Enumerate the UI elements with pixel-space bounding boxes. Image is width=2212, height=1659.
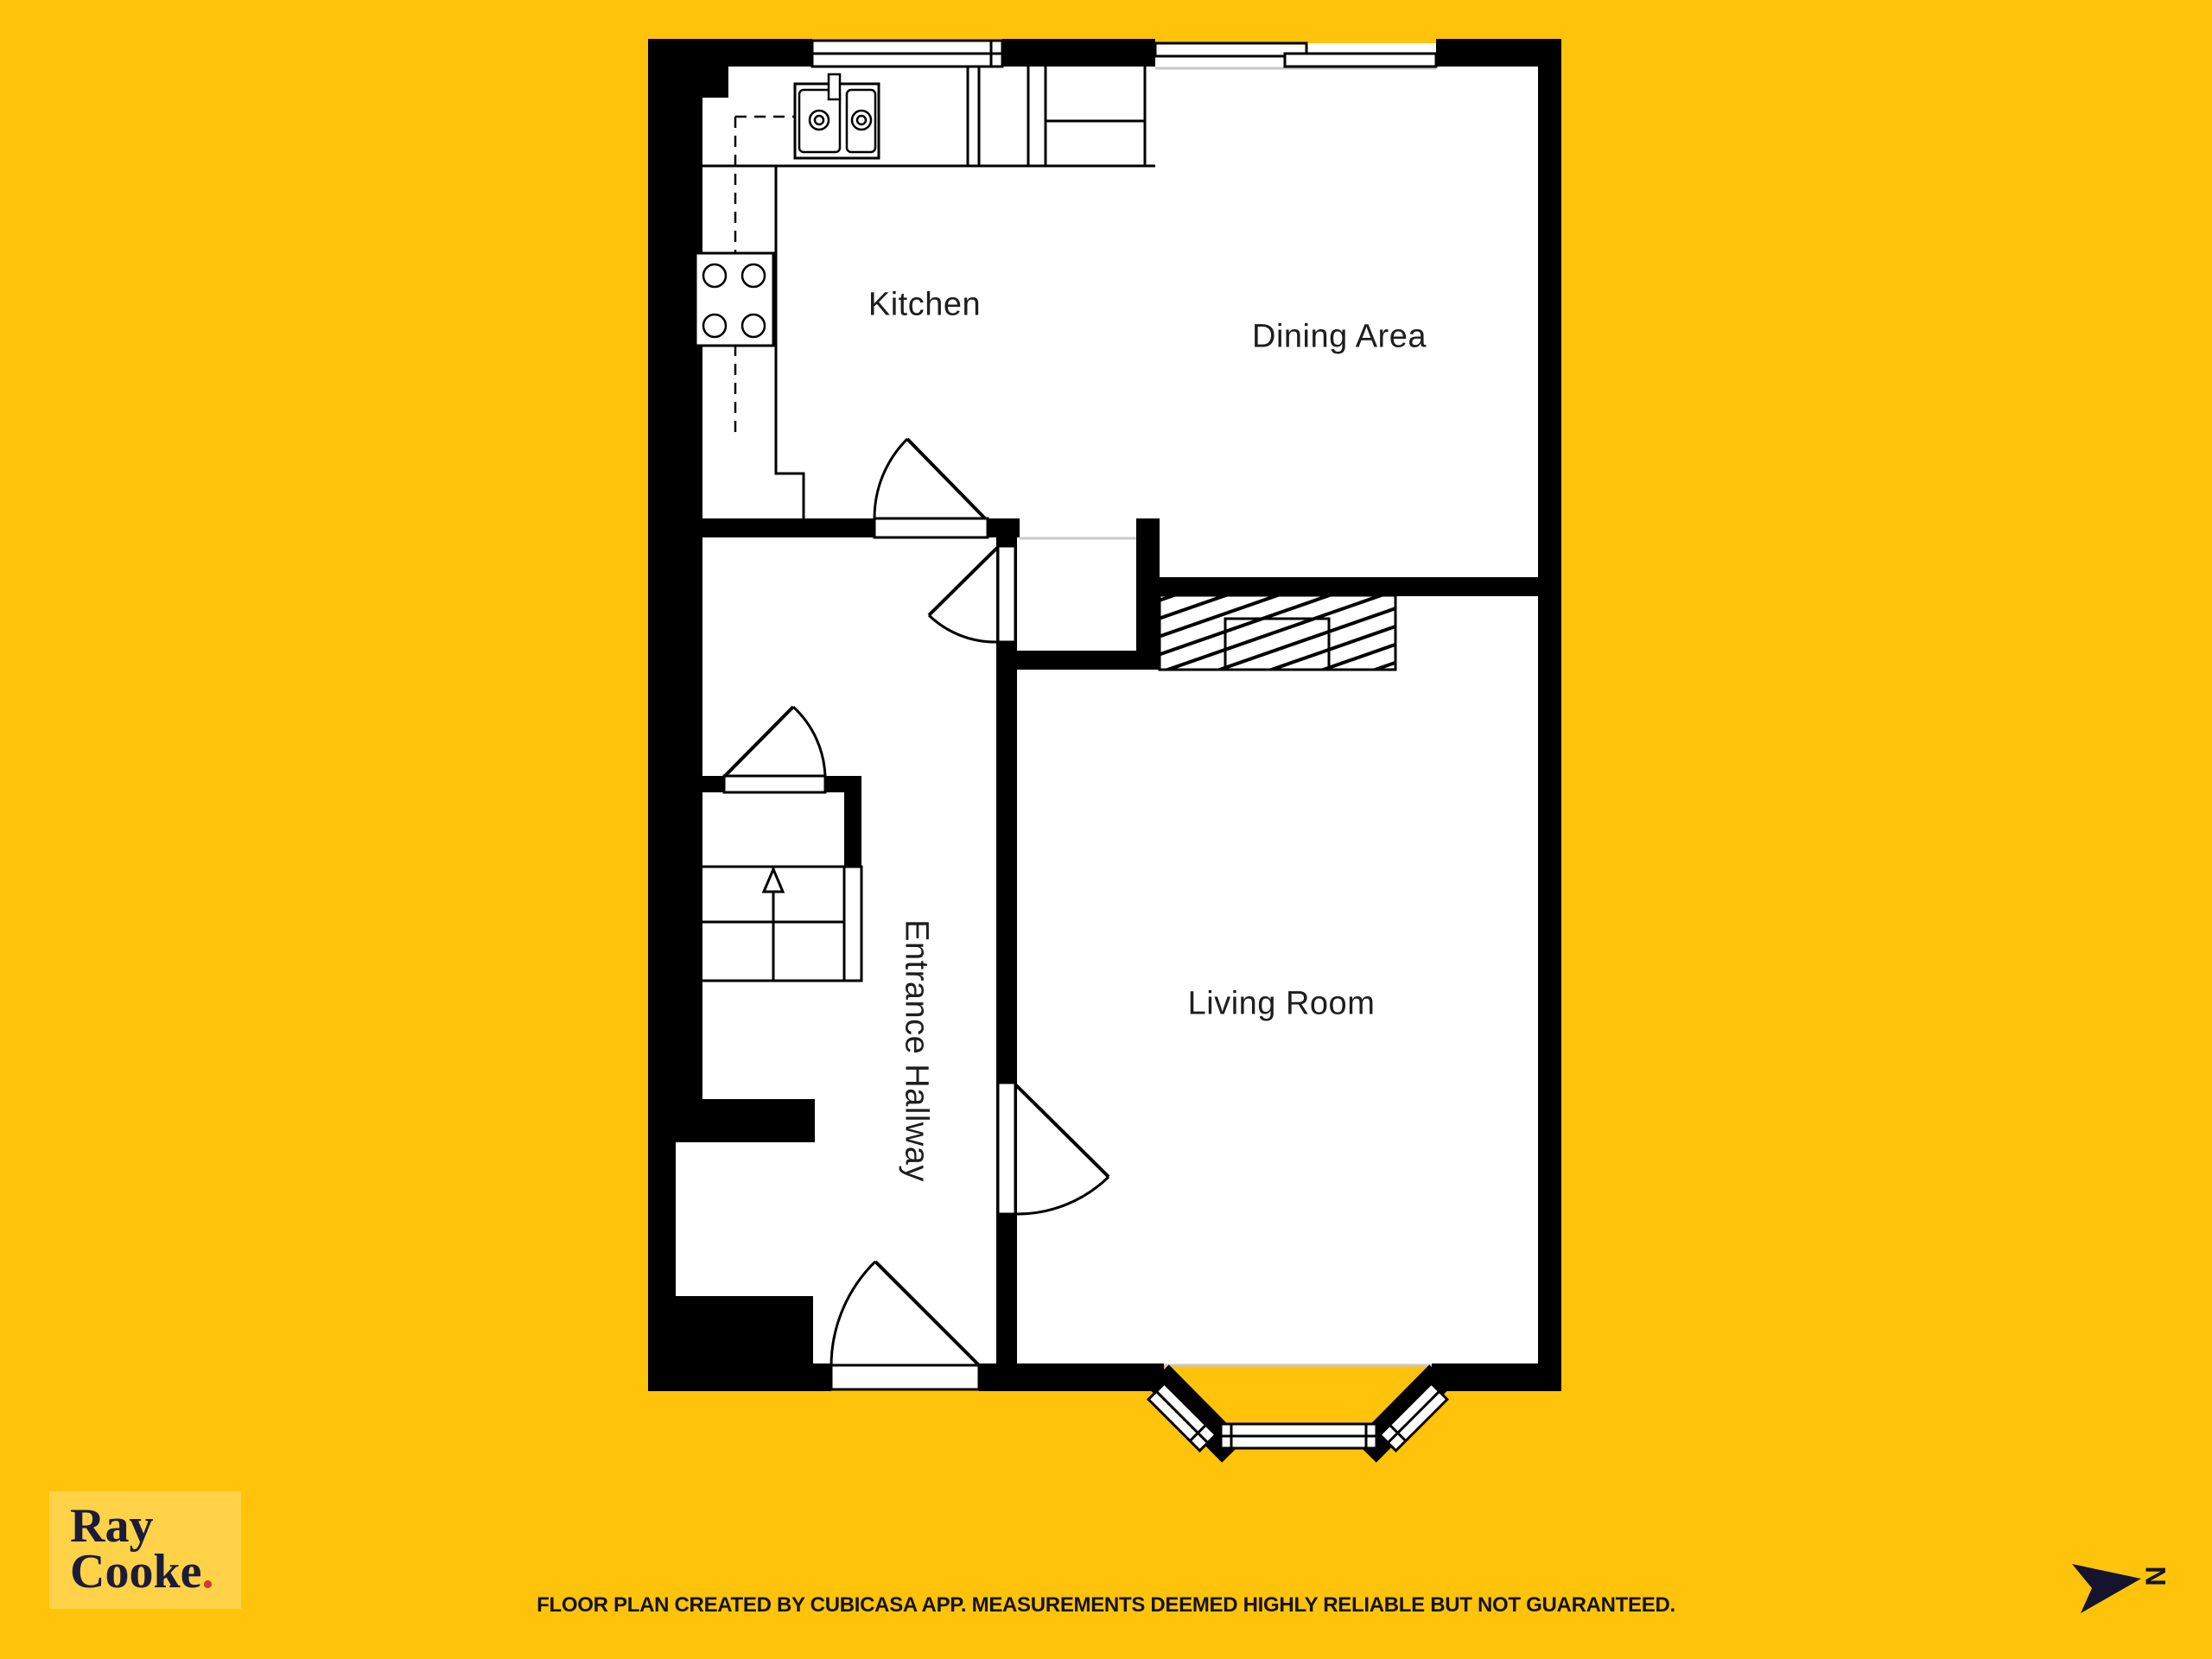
room-label-kitchen: Kitchen (868, 287, 981, 324)
logo-line-1: Ray (70, 1503, 241, 1549)
stove (696, 253, 773, 346)
floor-plan (0, 0, 2212, 1659)
dining-window (1155, 43, 1436, 67)
logo-dot: . (201, 1545, 213, 1599)
room-label-entrance-hallway: Entrance Hallway (898, 919, 935, 1182)
agency-logo: Ray Cooke. (49, 1491, 241, 1609)
room-label-dining-area: Dining Area (1252, 319, 1427, 356)
living-floor (1013, 577, 1538, 1365)
hallway-alcove-floor (676, 1142, 813, 1296)
bay-window (1148, 1376, 1447, 1452)
bay-window-center (1221, 1424, 1376, 1448)
north-arrow-icon (2072, 1564, 2141, 1613)
logo-line-2: Cooke. (70, 1549, 241, 1595)
stairs-banister (844, 867, 861, 981)
kitchen-sink (795, 74, 879, 158)
room-label-living-room: Living Room (1188, 986, 1376, 1023)
compass-north-label: N (2139, 1566, 2171, 1586)
footer-disclaimer: FLOOR PLAN CREATED BY CUBICASA APP. MEAS… (537, 1593, 1675, 1618)
kitchen-window (812, 41, 1002, 67)
room-floors (676, 67, 1538, 1365)
